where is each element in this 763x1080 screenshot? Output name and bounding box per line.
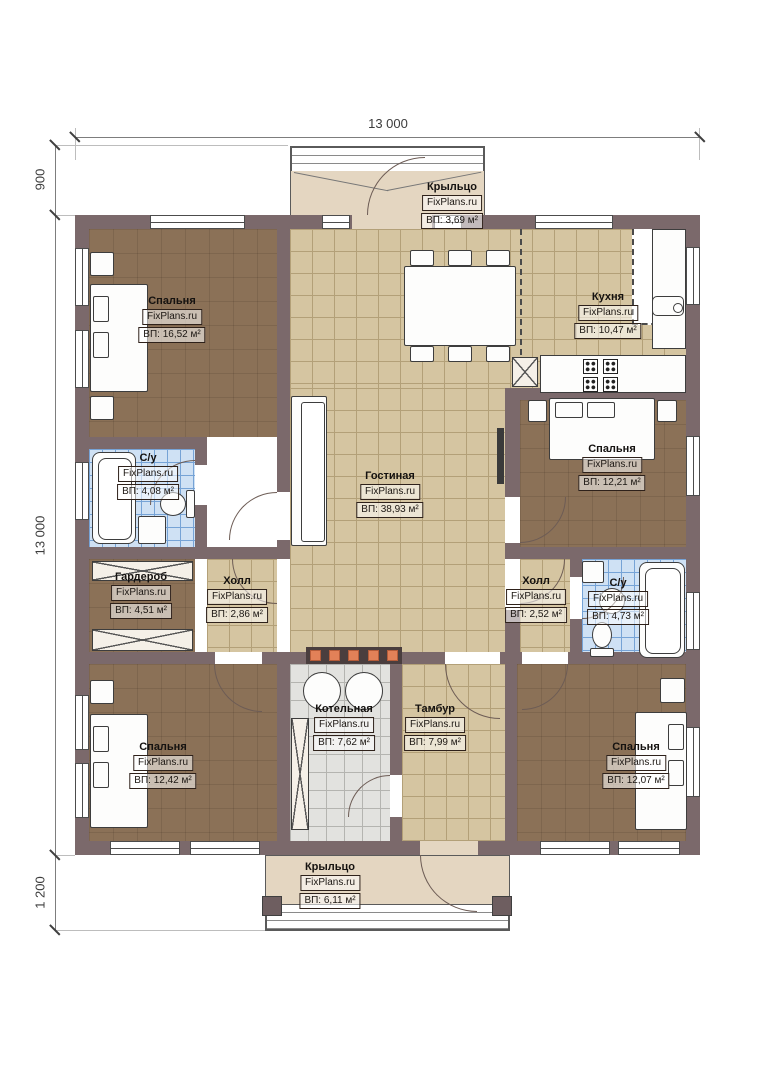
chair xyxy=(486,250,510,266)
pillow xyxy=(93,296,109,322)
wall-interior xyxy=(500,652,522,664)
watermark-box: FixPlans.ru xyxy=(422,195,482,211)
doorway-entry-bottom xyxy=(420,841,478,855)
room-name: Гардероб xyxy=(110,571,172,583)
watermark-box: FixPlans.ru xyxy=(314,717,374,733)
watermark-box: FixPlans.ru xyxy=(300,875,360,891)
window xyxy=(540,841,610,855)
dimension-width-top: 13 000 xyxy=(330,116,446,131)
chair xyxy=(448,346,472,362)
area-box: ВП: 2,52 м² xyxy=(505,607,567,623)
doorway-entry-top xyxy=(352,215,432,229)
tv xyxy=(497,428,504,484)
wardrobe-cabinet xyxy=(92,629,193,651)
stove-burner xyxy=(583,359,598,374)
washing-machine xyxy=(138,516,166,544)
watermark-box: FixPlans.ru xyxy=(207,589,267,605)
sofa xyxy=(291,396,327,546)
watermark-box: FixPlans.ru xyxy=(588,591,648,607)
stove-burner xyxy=(603,359,618,374)
bathtub-inner xyxy=(645,568,681,654)
wall-interior xyxy=(390,664,402,775)
room-label-boiler: Котельная FixPlans.ru ВП: 7,62 м² xyxy=(313,703,375,751)
window xyxy=(618,841,680,855)
room-label-bedroom-tl: Спальня FixPlans.ru ВП: 16,52 м² xyxy=(138,295,205,343)
window-sidelight xyxy=(322,215,350,229)
wall-interior xyxy=(89,547,290,559)
room-label-bath-left: С/у FixPlans.ru ВП: 4,08 м² xyxy=(117,452,179,500)
window xyxy=(150,215,245,229)
room-label-porch-top: Крыльцо FixPlans.ru ВП: 3,69 м² xyxy=(421,181,483,229)
sofa-seat xyxy=(301,402,325,542)
porch-column xyxy=(492,896,512,916)
room-label-bedroom-r: Спальня FixPlans.ru ВП: 12,21 м² xyxy=(578,443,645,491)
window xyxy=(190,841,260,855)
watermark-box: FixPlans.ru xyxy=(582,457,642,473)
area-box: ВП: 12,42 м² xyxy=(129,773,196,789)
room-name: С/у xyxy=(587,577,649,589)
wall-interior xyxy=(89,652,215,664)
porch-column xyxy=(262,896,282,916)
wall-interior xyxy=(195,437,207,465)
window xyxy=(75,695,89,750)
area-box: ВП: 4,51 м² xyxy=(110,603,172,619)
wall-outer-left xyxy=(75,215,89,855)
extension-line xyxy=(55,145,288,146)
toilet-tank xyxy=(590,648,614,657)
area-box: ВП: 16,52 м² xyxy=(138,327,205,343)
pillow xyxy=(668,724,684,750)
radiator-cell xyxy=(387,650,398,661)
door-arc-bedroom-tl xyxy=(229,492,277,540)
window xyxy=(535,215,613,229)
room-name: Крыльцо xyxy=(299,861,360,873)
room-label-hall-right: Холл FixPlans.ru ВП: 2,52 м² xyxy=(505,575,567,623)
pillow xyxy=(93,762,109,788)
room-name: Спальня xyxy=(129,741,196,753)
chair xyxy=(410,346,434,362)
radiator-cell xyxy=(329,650,340,661)
nightstand xyxy=(528,400,547,422)
window xyxy=(686,247,700,305)
wall-interior xyxy=(505,664,517,841)
window xyxy=(75,462,89,520)
room-label-bedroom-br: Спальня FixPlans.ru ВП: 12,07 м² xyxy=(602,741,669,789)
extension-line xyxy=(55,930,265,931)
window xyxy=(686,727,700,797)
room-label-porch-bottom: Крыльцо FixPlans.ru ВП: 6,11 м² xyxy=(299,861,360,909)
pillow xyxy=(555,402,583,418)
area-box: ВП: 38,93 м² xyxy=(356,502,423,518)
watermark-box: FixPlans.ru xyxy=(133,755,193,771)
watermark-box: FixPlans.ru xyxy=(360,484,420,500)
area-box: ВП: 12,21 м² xyxy=(578,475,645,491)
chair xyxy=(448,250,472,266)
kitchen-counter-side xyxy=(652,229,686,349)
area-box: ВП: 4,08 м² xyxy=(117,484,179,500)
dimension-height-left: 13 000 xyxy=(33,508,48,564)
pillow xyxy=(587,402,615,418)
chair xyxy=(486,346,510,362)
area-box: ВП: 4,73 м² xyxy=(587,609,649,625)
extension-line xyxy=(699,128,700,160)
wall-interior xyxy=(277,229,290,492)
room-label-bath-right: С/у FixPlans.ru ВП: 4,73 м² xyxy=(587,577,649,625)
radiator-cell xyxy=(368,650,379,661)
room-name: Кухня xyxy=(574,291,641,303)
radiator-strip xyxy=(306,647,402,664)
area-box: ВП: 12,07 м² xyxy=(602,773,669,789)
watermark-box: FixPlans.ru xyxy=(118,466,178,482)
wall-interior xyxy=(277,664,290,841)
dimension-porch-top-depth: 900 xyxy=(33,154,48,206)
room-name: Крыльцо xyxy=(421,181,483,193)
radiator-cell xyxy=(348,650,359,661)
window xyxy=(110,841,180,855)
wall-interior xyxy=(390,817,402,841)
area-box: ВП: 10,47 м² xyxy=(574,323,641,339)
nightstand xyxy=(90,252,114,276)
window xyxy=(686,436,700,496)
room-label-hall-left: Холл FixPlans.ru ВП: 2,86 м² xyxy=(206,575,268,623)
room-name: Холл xyxy=(505,575,567,587)
watermark-box: FixPlans.ru xyxy=(606,755,666,771)
nightstand xyxy=(90,396,114,420)
pillow xyxy=(93,332,109,358)
room-name: Тамбур xyxy=(404,703,466,715)
nightstand xyxy=(90,680,114,704)
pillow xyxy=(93,726,109,752)
room-label-wardrobe: Гардероб FixPlans.ru ВП: 4,51 м² xyxy=(110,571,172,619)
room-label-bedroom-bl: Спальня FixPlans.ru ВП: 12,42 м² xyxy=(129,741,196,789)
dimension-porch-bottom-depth: 1 200 xyxy=(33,867,48,919)
area-box: ВП: 6,11 м² xyxy=(299,893,360,909)
dimension-line-top xyxy=(75,137,700,138)
room-name: Спальня xyxy=(602,741,669,753)
watermark-box: FixPlans.ru xyxy=(506,589,566,605)
porch-top-steps xyxy=(291,147,484,172)
vent-shaft-marker xyxy=(512,357,538,387)
window xyxy=(75,763,89,818)
radiator-cell xyxy=(310,650,321,661)
room-name: Холл xyxy=(206,575,268,587)
window xyxy=(686,592,700,650)
dimension-line-left xyxy=(55,145,56,930)
room-label-kitchen: Кухня FixPlans.ru ВП: 10,47 м² xyxy=(574,291,641,339)
wall-interior xyxy=(505,547,686,559)
floor-plan-canvas: Крыльцо FixPlans.ru ВП: 3,69 м² Спальня … xyxy=(0,0,763,1080)
washing-machine xyxy=(652,296,684,316)
nightstand xyxy=(657,400,677,422)
area-box: ВП: 7,62 м² xyxy=(313,735,375,751)
window xyxy=(75,248,89,306)
boiler-equipment xyxy=(291,718,309,830)
window xyxy=(75,330,89,388)
room-name: Спальня xyxy=(578,443,645,455)
kitchen-zone-boundary xyxy=(520,229,522,355)
extension-line xyxy=(75,128,76,160)
area-box: ВП: 7,99 м² xyxy=(404,735,466,751)
dining-table xyxy=(404,266,516,346)
area-box: ВП: 2,86 м² xyxy=(206,607,268,623)
stove-burner xyxy=(603,377,618,392)
wall-interior xyxy=(505,388,520,497)
room-label-tambur: Тамбур FixPlans.ru ВП: 7,99 м² xyxy=(404,703,466,751)
watermark-box: FixPlans.ru xyxy=(142,309,202,325)
wall-interior xyxy=(195,505,207,547)
watermark-box: FixPlans.ru xyxy=(405,717,465,733)
pillow xyxy=(668,760,684,786)
toilet xyxy=(592,622,612,648)
watermark-box: FixPlans.ru xyxy=(578,305,638,321)
wall-interior xyxy=(89,437,207,449)
wall-interior xyxy=(570,559,582,577)
watermark-box: FixPlans.ru xyxy=(111,585,171,601)
nightstand xyxy=(660,678,685,703)
room-name: С/у xyxy=(117,452,179,464)
chair xyxy=(410,250,434,266)
room-name: Котельная xyxy=(313,703,375,715)
room-label-living: Гостиная FixPlans.ru ВП: 38,93 м² xyxy=(356,470,423,518)
washing-machine-door xyxy=(673,303,683,313)
room-name: Спальня xyxy=(138,295,205,307)
area-box: ВП: 3,69 м² xyxy=(421,213,483,229)
room-name: Гостиная xyxy=(356,470,423,482)
stove-burner xyxy=(583,377,598,392)
